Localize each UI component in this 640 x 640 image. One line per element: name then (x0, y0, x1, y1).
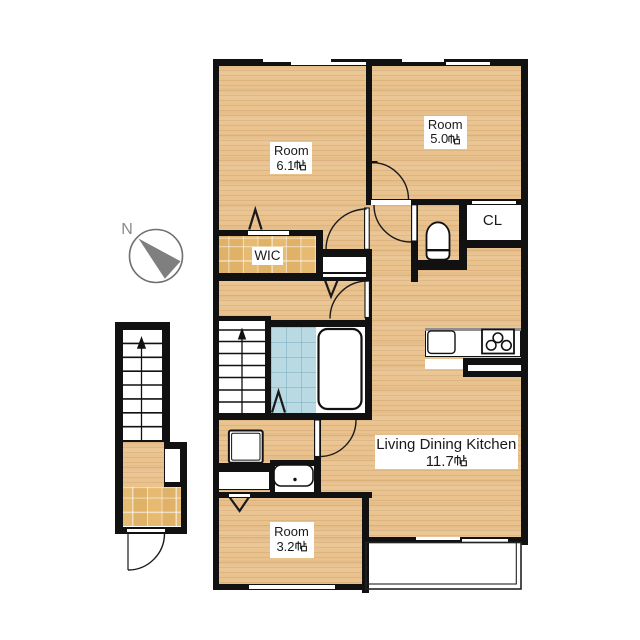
svg-text:N: N (121, 221, 133, 238)
